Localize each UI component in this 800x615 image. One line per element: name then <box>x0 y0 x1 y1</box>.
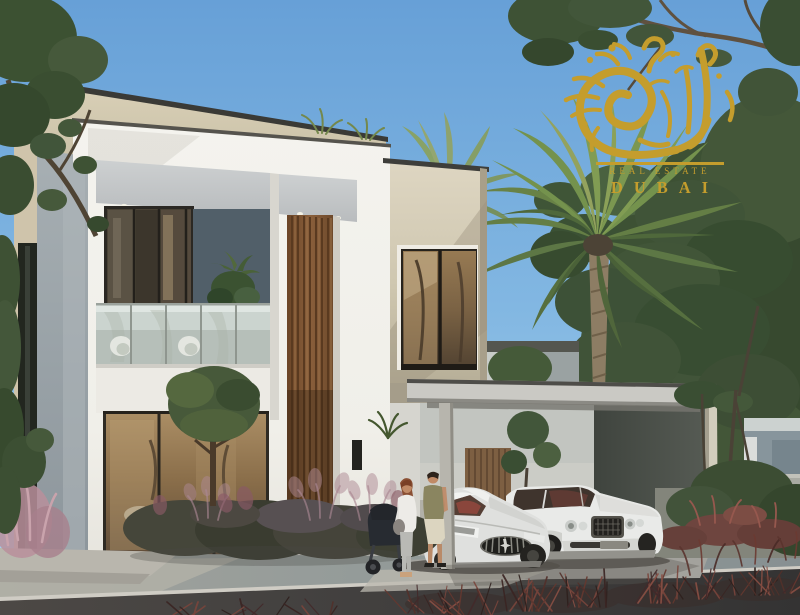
svg-text:REAL ESTATE: REAL ESTATE <box>609 166 710 176</box>
svg-text:DUBAI: DUBAI <box>611 178 719 197</box>
